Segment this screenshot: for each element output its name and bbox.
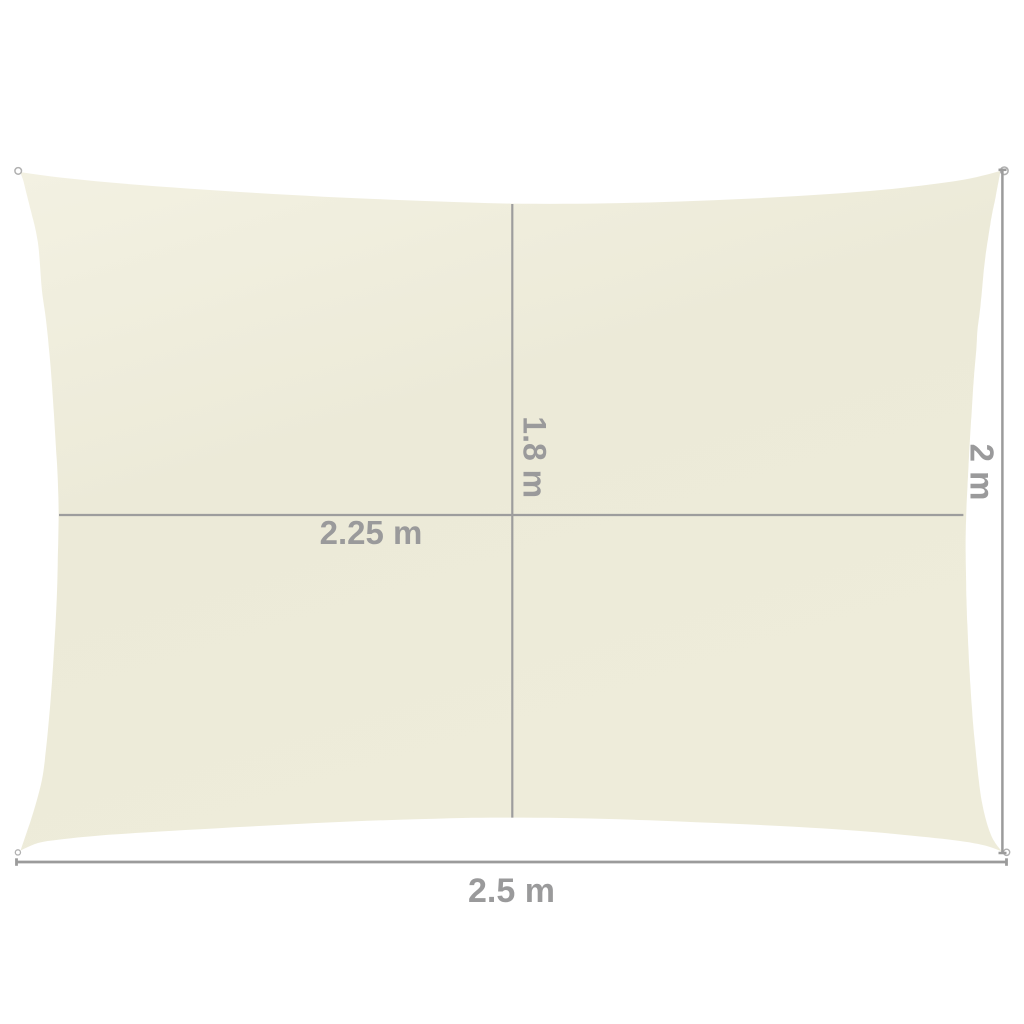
svg-text:2.5 m: 2.5 m — [468, 872, 555, 910]
svg-text:2 m: 2 m — [964, 444, 1001, 501]
svg-text:1.8 m: 1.8 m — [517, 416, 553, 498]
svg-text:2.25 m: 2.25 m — [320, 514, 423, 551]
